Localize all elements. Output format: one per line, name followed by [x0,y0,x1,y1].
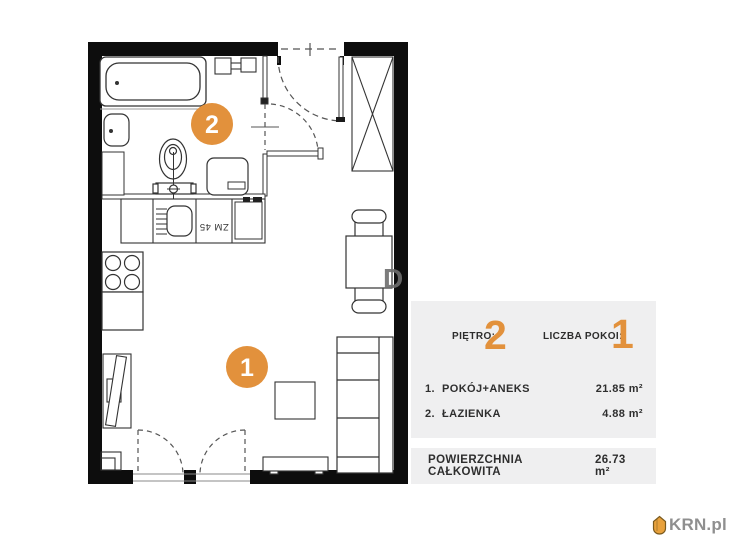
total-area-value: 26.73 m² [595,454,643,478]
krn-logo: KRN.pl [652,515,727,535]
bathroom-shelf [215,58,256,74]
floor-value: 2 [484,315,507,356]
washing-machine [207,158,248,195]
dishwasher: ZM 45 [199,221,228,232]
wardrobe [352,57,393,171]
listing-floorplan-image: ZM 45 [0,0,740,553]
room-badge-1: 1 [226,346,268,388]
bathroom-door [251,104,323,159]
room-area: 4.88 m² [602,408,643,420]
room-index: 2. [425,408,442,420]
stove [102,252,143,330]
room-badge-1-number: 1 [240,354,254,382]
radiator [101,452,121,470]
room-area-row: 2. ŁAZIENKA 4.88 m² [425,408,643,420]
room-badge-2: 2 [191,103,233,145]
dishwasher-label: ZM 45 [199,221,228,232]
dining-table [346,210,392,313]
room-area: 21.85 m² [596,383,643,395]
room-badge-2-number: 2 [205,111,219,139]
room-name: POKÓJ+ANEKS [442,383,530,395]
bathtub [100,57,207,109]
krn-logo-icon [652,515,667,535]
bathroom-cabinet [102,152,124,195]
sofa [337,337,393,473]
dining-chair-top-back [352,210,386,223]
info-panel: PIĘTRO: 2 LICZBA POKOI: 1 1. POKÓJ+ANEKS… [411,301,656,438]
dining-chair-bottom-back [352,300,386,313]
watermark-letter: D [383,263,403,294]
room-area-row: 1. POKÓJ+ANEKS 21.85 m² [425,383,643,395]
coffee-table [275,382,315,419]
room-name: ŁAZIENKA [442,408,501,420]
kitchen-counter [121,199,265,243]
tv-bench [263,457,328,474]
rooms-count-value: 1 [611,314,634,355]
krn-logo-text: KRN.pl [669,515,727,535]
room-index: 1. [425,383,442,395]
total-area-label: POWIERZCHNIA CAŁKOWITA [428,454,595,478]
washbasin [104,114,129,146]
entry-door [278,43,345,122]
storage-rack [103,354,131,428]
total-area-bar: POWIERZCHNIA CAŁKOWITA 26.73 m² [411,448,656,484]
